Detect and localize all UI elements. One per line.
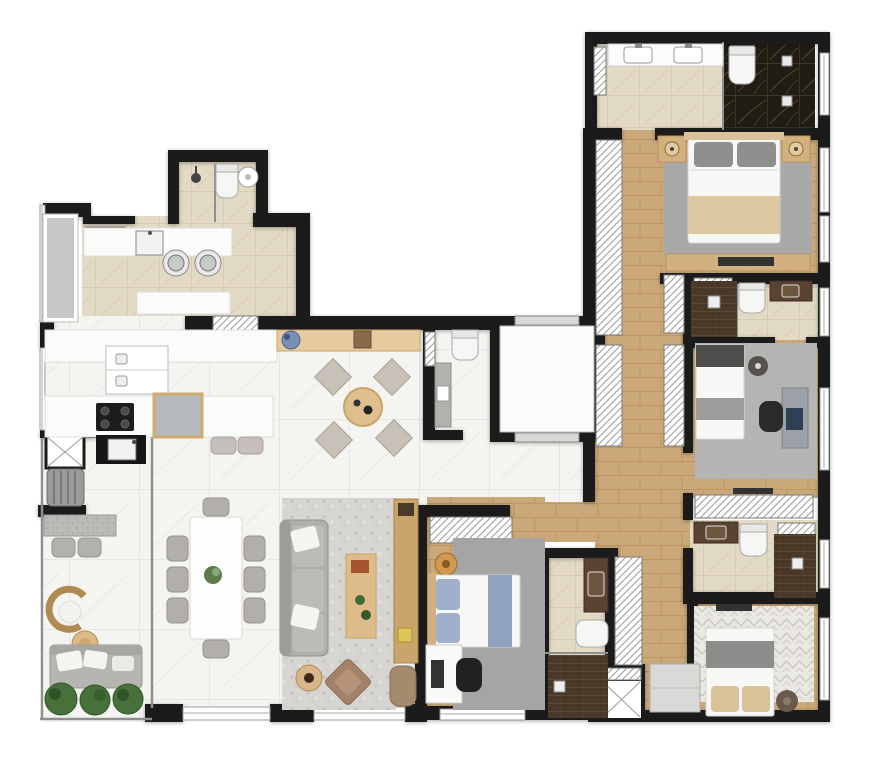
washer-1-door [168, 255, 184, 271]
elevator-door-top [515, 316, 579, 325]
balcony-plant-1 [45, 683, 77, 715]
bedroom3-pillow-2 [742, 686, 770, 712]
dining-chair-left-1 [167, 536, 188, 561]
bath3-sink [706, 526, 726, 539]
laundry-faucet [148, 231, 152, 235]
dining-chair-right-1 [244, 536, 265, 561]
hall-wardrobe-right-b [664, 345, 684, 446]
master-faucet-1 [635, 44, 642, 48]
kitchen-fridge-icon-2 [116, 376, 127, 386]
hall-wardrobe-right-a [664, 275, 684, 333]
office-bed-band [696, 398, 744, 420]
balcony-plant-1-dot [49, 688, 61, 700]
kitchen-door [213, 316, 258, 330]
balcony-pillow-3 [112, 656, 134, 671]
master-tv [718, 257, 774, 266]
office-pouf-dot [755, 363, 761, 369]
breakfast-table [344, 388, 382, 426]
master-sink-2 [674, 47, 702, 63]
bedroom3-tv [716, 604, 752, 611]
floor-plan [0, 0, 870, 768]
cooktop-burner-4 [121, 420, 129, 428]
master-lamp-left-dot [670, 147, 674, 151]
lavabo-toilet-tank [452, 330, 478, 338]
laundry-cabinet-inner [47, 218, 74, 318]
bar-flowers-dot [284, 334, 290, 340]
sofa-back [280, 520, 291, 656]
master-pillow-2 [737, 142, 776, 167]
floor-plan-page [0, 0, 870, 768]
servicebath-sink-dot [245, 174, 251, 180]
coffee-table-plant-1 [355, 595, 365, 605]
wall-living-top-b [258, 316, 425, 330]
office-bed-headboard [696, 345, 744, 367]
dining-centerpiece [204, 566, 222, 584]
breakfast-cup-1 [354, 400, 361, 407]
midbath-shower-floor [691, 281, 737, 337]
wall-living-top-a [185, 316, 213, 330]
bar-flowers [282, 331, 300, 349]
bedroom2-headboard [428, 573, 436, 649]
wall-laundry-divider [83, 216, 135, 224]
elevator-door-bottom [515, 433, 579, 442]
servicebath-toilet-tank [216, 164, 238, 172]
balcony-counter [44, 515, 116, 536]
island-stool-2 [238, 437, 263, 454]
kitchen-sink [108, 439, 136, 460]
master-sink-1 [624, 47, 652, 63]
dining-chair-bottom [203, 640, 229, 658]
master-faucet-2 [685, 44, 692, 48]
servicebath-shower-head [191, 173, 201, 183]
bath2-sink [588, 572, 604, 596]
hall-wardrobe-lower [596, 345, 622, 446]
bath2-toilet [576, 620, 608, 647]
breakfast-cup-2 [364, 406, 373, 415]
coffee-table-plant-2 [361, 610, 371, 620]
bbq-grill [47, 469, 84, 506]
master-headboard [684, 132, 784, 140]
rattan-armchair-cushion [59, 601, 81, 623]
office-chair [759, 401, 783, 432]
lavabo-sink [437, 386, 449, 401]
bar-box [354, 331, 371, 348]
washer-2-door [200, 255, 216, 271]
bedroom3-pouf-dot [783, 697, 791, 705]
wall-living-bottom-c [405, 704, 427, 722]
balcony-plant-2-dot [94, 689, 106, 701]
wall-hall-office-b [683, 493, 693, 520]
shower-drain-2 [782, 96, 792, 106]
balcony-plant-2 [80, 685, 110, 715]
hall-wardrobe-upper [596, 140, 622, 335]
master-throw [688, 196, 780, 234]
dining-centerpiece-dot [212, 568, 220, 576]
balcony-stool-1 [52, 538, 75, 557]
cooktop-burner-2 [121, 407, 129, 415]
kitchen-glass-panel [154, 394, 202, 437]
dining-chair-right-3 [244, 598, 265, 623]
bath2-shower-head [554, 681, 565, 692]
cooktop-burner-1 [101, 407, 109, 415]
dining-chair-top [203, 498, 229, 516]
cooktop-burner-3 [101, 420, 109, 428]
wall-laundry-right [296, 227, 310, 316]
living-ottoman [390, 666, 416, 706]
balcony-plant-3 [113, 684, 143, 714]
wall-lavabo-bottom [423, 430, 463, 440]
midbath-shower-head [708, 296, 720, 308]
bedroom2-runner [488, 575, 512, 647]
wall-bedroom2-top [415, 505, 510, 517]
master-lamp-right-dot [794, 147, 798, 151]
laundry-cabinets-row [137, 292, 230, 314]
bedroom2-monitor [431, 660, 444, 688]
wall-laundry-step [253, 213, 310, 227]
bedroom2-chair [456, 658, 482, 692]
wall-below-elevator [583, 442, 595, 502]
wall-bath2-top [537, 548, 612, 558]
dining-chair-left-3 [167, 598, 188, 623]
living-side-table-item [304, 673, 314, 683]
midbath-sink [782, 285, 799, 297]
bath3-shower-head [792, 558, 803, 569]
console-item-dark [398, 503, 414, 516]
bath2-closet [615, 557, 642, 665]
wall-servicebath-left [168, 150, 179, 224]
elevator-cab [500, 326, 594, 432]
bath3-toilet-tank [740, 524, 767, 532]
master-pillow-1 [694, 142, 733, 167]
dining-chair-right-2 [244, 567, 265, 592]
master-bath-niche [594, 47, 606, 95]
balcony-plant-3-dot [117, 689, 129, 701]
balcony-stool-2 [78, 538, 101, 557]
bedroom2-stool-dot [442, 560, 450, 568]
bedroom2-pillow-1 [436, 579, 460, 610]
island-stool-1 [211, 437, 236, 454]
office-laptop [786, 408, 803, 430]
coffee-table-book [351, 560, 369, 573]
midbath-toilet-tank [739, 283, 765, 290]
kitchen-faucet [132, 440, 136, 444]
bedroom2-pillow-2 [436, 613, 460, 643]
kitchen-fridge-icon-1 [116, 354, 127, 364]
wall-servicebath-top [168, 150, 268, 162]
office-tv [733, 488, 773, 494]
console-item-gold [398, 628, 412, 642]
wall-master-top [585, 32, 830, 44]
bedroom3-bed-band [706, 641, 774, 668]
wall-hall-left [583, 128, 597, 318]
hall-entry-wood [505, 502, 600, 542]
balcony-pillow-2 [83, 650, 108, 670]
dining-chair-left-2 [167, 567, 188, 592]
wall-lavabo-top [423, 316, 493, 330]
shower-drain-1 [782, 56, 792, 66]
master-toilet-tank [729, 46, 755, 55]
office-wardrobe [695, 495, 813, 518]
bedroom3-pillow-1 [711, 686, 739, 712]
lavabo-door [425, 332, 435, 366]
